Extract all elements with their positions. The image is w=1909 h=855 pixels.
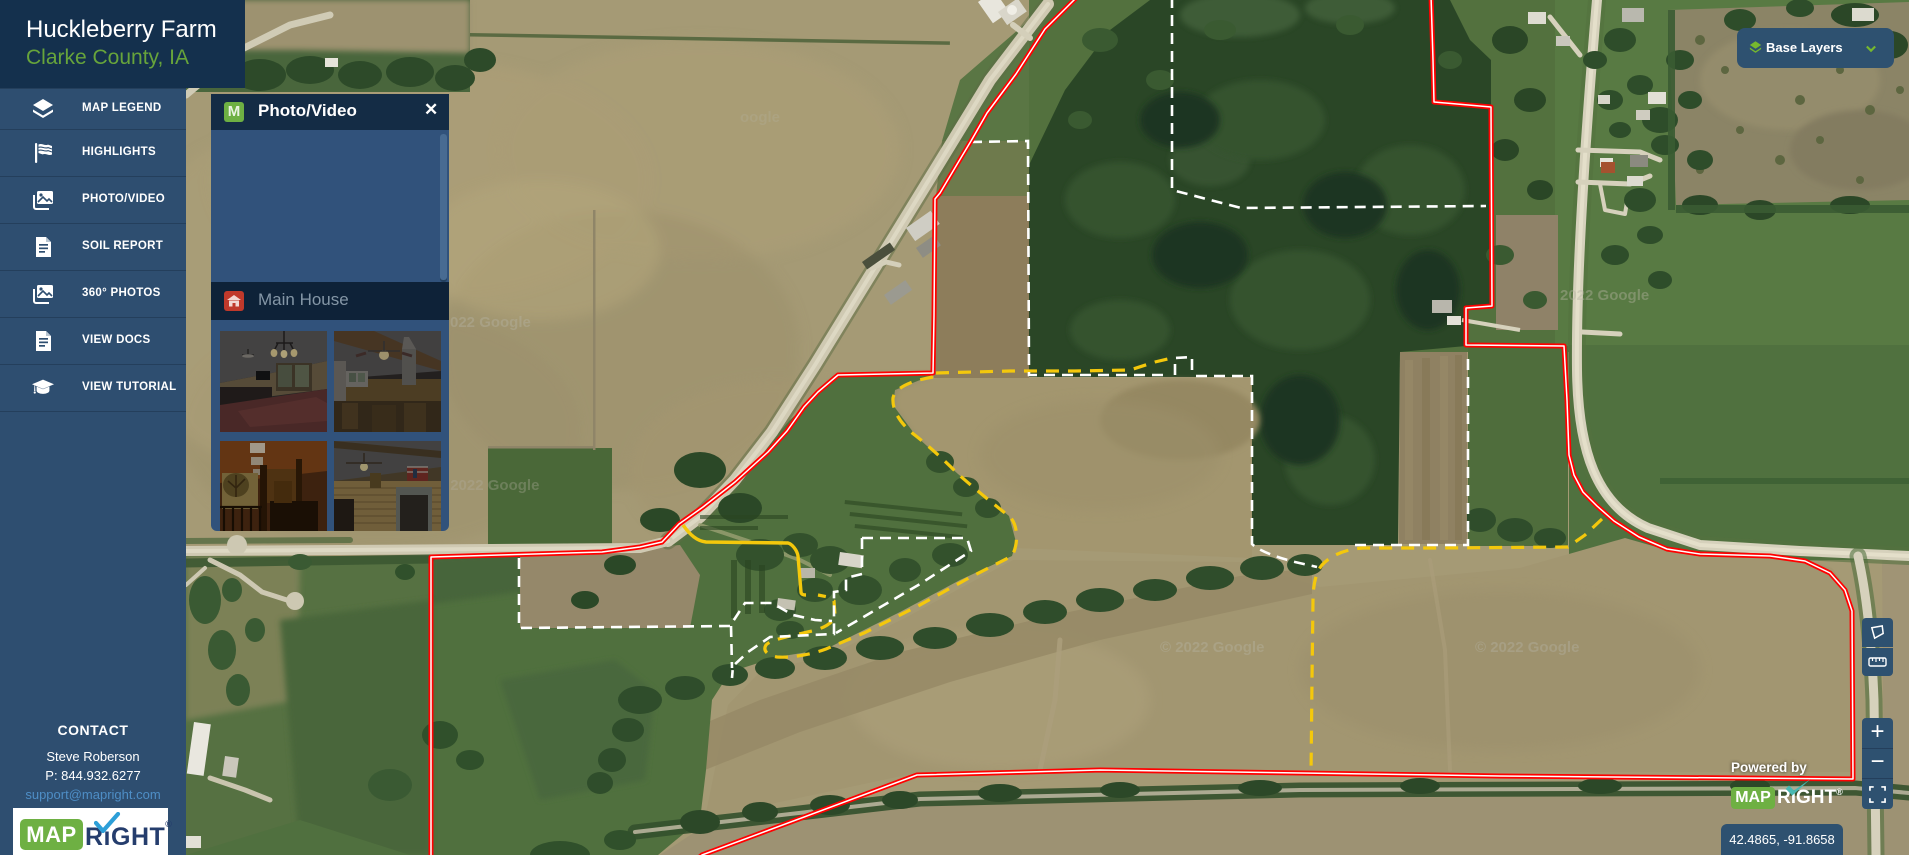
- svg-text:© 2022 Google: © 2022 Google: [1160, 639, 1264, 656]
- svg-text:© 2022 Google: © 2022 Google: [1475, 639, 1579, 656]
- svg-text:2022 Google: 2022 Google: [1560, 287, 1649, 304]
- svg-text:© 2022 Google: © 2022 Google: [435, 477, 539, 494]
- svg-text:oogle: oogle: [740, 109, 780, 126]
- svg-text:022 Google: 022 Google: [450, 314, 531, 331]
